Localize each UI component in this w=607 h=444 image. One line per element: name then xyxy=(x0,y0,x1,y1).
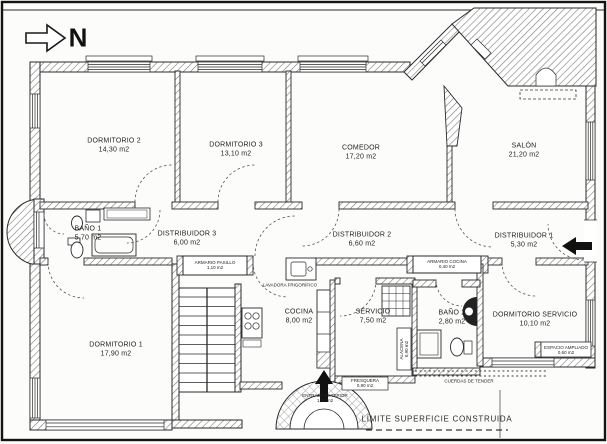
room-name: BAÑO 1 xyxy=(75,226,102,235)
room-name: DORMITORIO 3 xyxy=(209,142,263,151)
staircase xyxy=(179,288,235,392)
room-area: 6,60 m2 xyxy=(333,240,392,249)
floor-plan-drawing xyxy=(0,0,607,444)
closet-name: LAVADORA FRIGORÍFICO xyxy=(263,282,317,287)
label-entrada-exterior: ENTRADA EXTERIOR 1,00 m2 xyxy=(302,393,348,403)
closet-area: 0,60 m2 xyxy=(544,350,588,355)
room-area: 5,30 m2 xyxy=(495,241,554,250)
room-area: 10,10 m2 xyxy=(493,320,577,329)
room-label-dormitorio-1: DORMITORIO 1 17,90 m2 xyxy=(89,342,143,359)
room-name: DORMITORIO SERVICIO xyxy=(493,312,577,321)
room-label-bano-1: BAÑO 1 5,70 m2 xyxy=(75,226,102,243)
label-espacio-ampliado: ESPACIO AMPLIADO 0,60 m2 xyxy=(544,345,588,355)
label-fresquera: FRESQUERA 0,90 m2 xyxy=(351,378,379,388)
room-name: DORMITORIO 2 xyxy=(87,138,141,147)
room-area: 21,20 m2 xyxy=(509,151,540,160)
room-name: DISTRIBUIDOR 3 xyxy=(158,231,217,240)
room-label-dormitorio-3: DORMITORIO 3 13,10 m2 xyxy=(209,142,263,159)
room-area: 8,00 m2 xyxy=(285,317,313,326)
room-name: DISTRIBUIDOR 1 xyxy=(495,233,554,242)
label-alacena: ALACENA 0,90 m2 xyxy=(399,338,409,359)
north-label: N xyxy=(69,23,88,54)
room-label-distribuidor-1: DISTRIBUIDOR 1 5,30 m2 xyxy=(495,233,554,250)
room-name: SALÓN xyxy=(509,143,540,152)
room-label-distribuidor-3: DISTRIBUIDOR 3 6,00 m2 xyxy=(158,231,217,248)
floor-plan-page: N DORMITORIO 2 14,30 m2 DORMITORIO 3 13,… xyxy=(0,0,607,444)
room-area: 5,70 m2 xyxy=(75,234,102,243)
room-area: 17,20 m2 xyxy=(342,153,380,162)
label-armario-pasillo: ARMARIO PASILLO 1,10 m2 xyxy=(195,260,236,270)
closet-area: 1,00 m2 xyxy=(302,398,348,403)
room-name: DISTRIBUIDOR 2 xyxy=(333,232,392,241)
room-label-salon: SALÓN 21,20 m2 xyxy=(509,143,540,160)
closet-area: 0,90 m2 xyxy=(404,338,409,359)
room-name: DORMITORIO 1 xyxy=(89,342,143,351)
room-label-bano-2: BAÑO 2 2,80 m2 xyxy=(439,310,466,327)
room-name: COCINA xyxy=(285,309,313,318)
label-cuerdas-de-tender: CUERDAS DE TENDER xyxy=(444,378,493,383)
room-name: COMEDOR xyxy=(342,145,380,154)
room-label-servicio: SERVICIO 7,50 m2 xyxy=(356,309,391,326)
room-name: SERVICIO xyxy=(356,309,391,318)
north-arrow-icon xyxy=(26,25,65,51)
closet-area: 0,40 m2 xyxy=(427,264,467,269)
closet-area: 0,90 m2 xyxy=(351,383,379,388)
label-lavadora-frigorifico: LAVADORA FRIGORÍFICO xyxy=(263,282,317,287)
label-limite-superficie-construida: LÍMITE SUPERFICIE CONSTRUIDA xyxy=(362,415,513,424)
label-armario-cocina: ARMARIO COCINA 0,40 m2 xyxy=(427,259,467,269)
room-label-dormitorio-2: DORMITORIO 2 14,30 m2 xyxy=(87,138,141,155)
room-area: 17,90 m2 xyxy=(89,350,143,359)
room-area: 6,00 m2 xyxy=(158,239,217,248)
room-area: 2,80 m2 xyxy=(439,318,466,327)
room-area: 7,50 m2 xyxy=(356,317,391,326)
room-area: 13,10 m2 xyxy=(209,150,263,159)
room-label-distribuidor-2: DISTRIBUIDOR 2 6,60 m2 xyxy=(333,232,392,249)
room-label-cocina: COCINA 8,00 m2 xyxy=(285,309,313,326)
room-label-comedor: COMEDOR 17,20 m2 xyxy=(342,145,380,162)
room-area: 14,30 m2 xyxy=(87,146,141,155)
room-name: BAÑO 2 xyxy=(439,310,466,319)
closet-area: 1,10 m2 xyxy=(195,265,236,270)
room-label-dormitorio-servicio: DORMITORIO SERVICIO 10,10 m2 xyxy=(493,312,577,329)
